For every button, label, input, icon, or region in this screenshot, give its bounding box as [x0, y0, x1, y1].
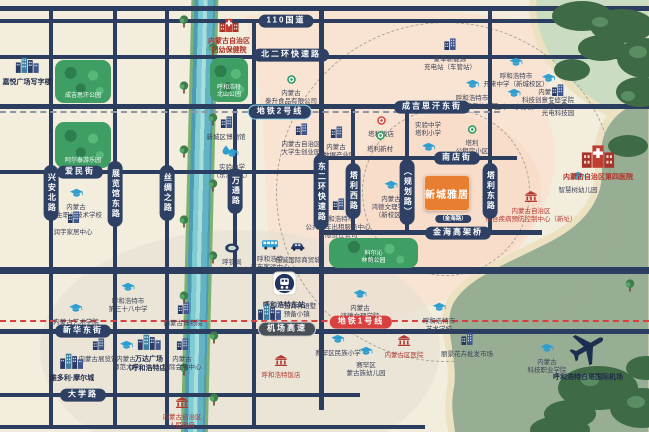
tree-icon: [208, 179, 218, 197]
road-label: 北二环快速路: [253, 49, 329, 62]
gov-icon: [525, 188, 538, 208]
school-icon: [226, 144, 239, 164]
school-icon: [354, 285, 367, 305]
poi-building: 内蒙古博物院: [164, 300, 203, 328]
poi-label: 内蒙古自治区大学生创业园: [282, 141, 321, 157]
poi-hospital: 内蒙古自治区第四医院: [563, 144, 633, 183]
building-icon: [176, 336, 188, 356]
poi-label: 呼和浩特饭店: [262, 372, 301, 380]
stadium-icon: [225, 239, 240, 259]
road-label: （规划路）: [400, 159, 415, 225]
poi-city: 维多利·摩尔城: [50, 352, 94, 384]
building-icon: [295, 121, 307, 141]
plane-icon: [567, 326, 609, 374]
road-label: 110国道: [259, 15, 314, 28]
gov-icon: [398, 332, 411, 352]
poi-label: 内蒙古自治区综合疾病预防控制中心（新址）: [486, 208, 577, 224]
poi-school: 回中二小分校: [495, 84, 534, 112]
poi-label: 内蒙古国际会展中心: [163, 356, 202, 372]
road-label: 东二环快速路: [314, 154, 329, 230]
poi-dot-green: 塔利新村: [367, 126, 393, 154]
building-icon: [67, 209, 79, 229]
poi-label: 呼铁局火车头体育场: [213, 259, 252, 275]
dot-green-icon: [376, 126, 385, 146]
poi-label: 丽景花卉批发市场: [441, 351, 493, 359]
poi-building: 丽景花卉批发市场: [441, 331, 493, 359]
poi-school: 内蒙古艺术学院: [53, 299, 99, 327]
building-icon: [220, 114, 232, 134]
poi-car: 佳诚国际商贸城: [275, 237, 321, 265]
poi-stadium: 呼铁局火车头体育场: [213, 239, 252, 275]
road-label: 成吉思汗东街: [394, 101, 470, 114]
project-name: 新城雅居: [425, 186, 469, 201]
hospital-icon: [581, 144, 615, 174]
hospital-icon: [219, 18, 239, 38]
poi-building: 蒙草新能源充电站（车管站）: [424, 36, 476, 72]
poi-label: 呼和浩特市第三十八中学: [109, 298, 148, 314]
building-icon: [461, 331, 473, 351]
road-label: 新华东街: [55, 325, 111, 338]
poi-label: 工商林语墅预备小镇: [284, 303, 317, 319]
road-label: 大学路: [60, 389, 106, 402]
tree-icon: [625, 279, 635, 297]
city-icon: [60, 352, 84, 375]
project-marker: 新城雅居: [424, 175, 470, 211]
poi-dot-green: 内蒙古泰升食品有限公司: [265, 70, 317, 106]
school-icon: [70, 299, 83, 319]
poi-label: 佳诚国际商贸城: [275, 257, 321, 265]
road-label: （金海路）: [435, 215, 471, 223]
poi-hospital: 内蒙古自治区妇幼保健院: [208, 18, 250, 56]
gov-icon: [176, 394, 189, 414]
gov-icon: [275, 352, 288, 372]
tree-icon: [179, 145, 189, 163]
poi-label: 内蒙古自治区第四医院: [563, 174, 633, 183]
school-icon: [70, 184, 83, 204]
school-icon: [332, 330, 345, 350]
school-icon: [508, 84, 521, 104]
poi-building: 金三角光电科技园: [542, 82, 575, 118]
city-icon: [15, 56, 39, 79]
poi-label: 内蒙古博物院: [164, 320, 203, 328]
building-icon: [444, 36, 456, 56]
poi-city: 嘉悦广场写字楼: [3, 56, 52, 88]
school-icon: [433, 298, 446, 318]
poi-label: 塔利新村: [367, 146, 393, 154]
road-label: 金海高架桥: [425, 227, 491, 240]
school-icon: [422, 138, 435, 158]
poi-gov: 内蒙古区医院: [385, 332, 424, 360]
school-icon: [541, 339, 554, 359]
poi-label: 金三角光电科技园: [542, 102, 575, 118]
poi-building: 润宇家居中心: [54, 209, 93, 237]
road-label: 机场高速: [258, 322, 316, 337]
road-label: 南店街: [434, 152, 480, 165]
city-icon: [137, 333, 161, 356]
school-icon: [510, 53, 523, 73]
poi-gov: 内蒙古自治区人民政府: [163, 394, 202, 430]
school-icon: [360, 342, 373, 362]
poi-gov: 内蒙古自治区综合疾病预防控制中心（新址）: [486, 188, 577, 224]
tree-icon: [209, 331, 219, 349]
tree-icon: [179, 215, 189, 233]
poi-plane: 呼和浩特白塔国际机场: [553, 326, 623, 383]
road-label: 地铁1号线: [330, 316, 392, 329]
school-icon: [122, 278, 135, 298]
poi-building: 内蒙古国际会展中心: [163, 336, 202, 372]
poi-label: 内蒙古区医院: [385, 352, 424, 360]
location-map: 成吉思汗公园阿尔泰游乐园呼和浩特北山公园科尔沁林荫公园 110国道北二环快速路地…: [0, 0, 649, 432]
building-icon: [177, 300, 189, 320]
poi-school: 赛罕区蒙古族幼儿园: [347, 342, 386, 378]
poi-label: 内蒙古自治区妇幼保健院: [208, 38, 250, 56]
poi-label: 嘉悦广场写字楼: [3, 79, 52, 88]
dot-green-icon: [468, 120, 477, 140]
train-icon: [272, 271, 297, 302]
car-icon: [291, 237, 306, 257]
poi-label: 实验中学塔利小学: [415, 122, 441, 138]
building-icon: [552, 82, 564, 102]
tree-icon: [179, 81, 189, 99]
poi-label: 回中二小分校: [495, 104, 534, 112]
poi-label: 润宇家居中心: [54, 229, 93, 237]
tree-icon: [179, 15, 189, 33]
school-icon: [385, 176, 398, 196]
poi-building: 内蒙古自治区大学生创业园: [282, 121, 321, 157]
dot-green-icon: [287, 70, 296, 90]
building-icon: [332, 196, 344, 216]
tree-icon: [209, 393, 219, 411]
building-icon: [330, 124, 342, 144]
poi-gov: 呼和浩特饭店: [262, 352, 301, 380]
poi-label: 内蒙古自治区人民政府: [163, 414, 202, 430]
poi-label: 呼和浩特白塔国际机场: [553, 374, 623, 383]
road-label: 塔利东路: [483, 163, 498, 219]
road-label: 兴安北路: [44, 165, 59, 221]
poi-building: 新城区博物馆: [207, 114, 246, 142]
school-icon: [466, 75, 479, 95]
poi-label: 蒙草新能源充电站（车管站）: [424, 56, 476, 72]
road-label: 丝绸之路: [160, 165, 175, 221]
road-label: 塔利西路: [346, 163, 361, 219]
poi-school: 呼和浩特市艺术学校: [423, 298, 456, 334]
road-label: 爱民街: [57, 166, 103, 179]
road-label: 展览馆东路: [108, 161, 123, 227]
road-label: 万通路: [228, 168, 243, 214]
poi-label: 维多利·摩尔城: [50, 375, 94, 384]
poi-school: 呼和浩特市第三十八中学: [109, 278, 148, 314]
road-label: 地铁2号线: [248, 105, 312, 120]
poi-label: 赛罕区蒙古族幼儿园: [347, 362, 386, 378]
